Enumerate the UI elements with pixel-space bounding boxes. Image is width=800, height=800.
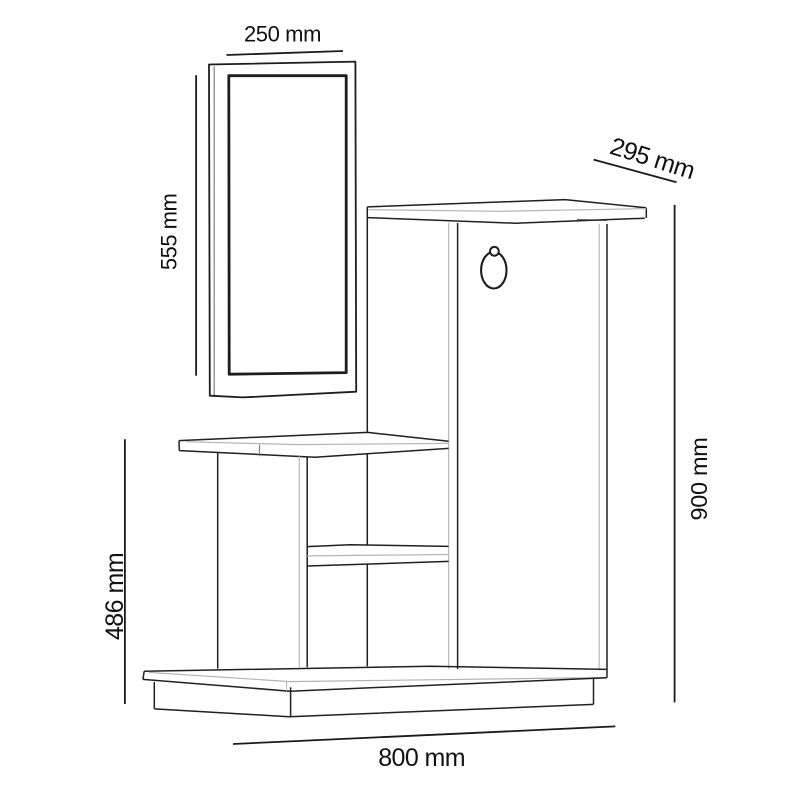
- svg-text:800 mm: 800 mm: [378, 744, 465, 772]
- svg-text:900 mm: 900 mm: [686, 437, 712, 520]
- svg-text:555 mm: 555 mm: [156, 194, 181, 270]
- svg-text:486 mm: 486 mm: [101, 553, 129, 640]
- svg-text:250 mm: 250 mm: [244, 21, 321, 46]
